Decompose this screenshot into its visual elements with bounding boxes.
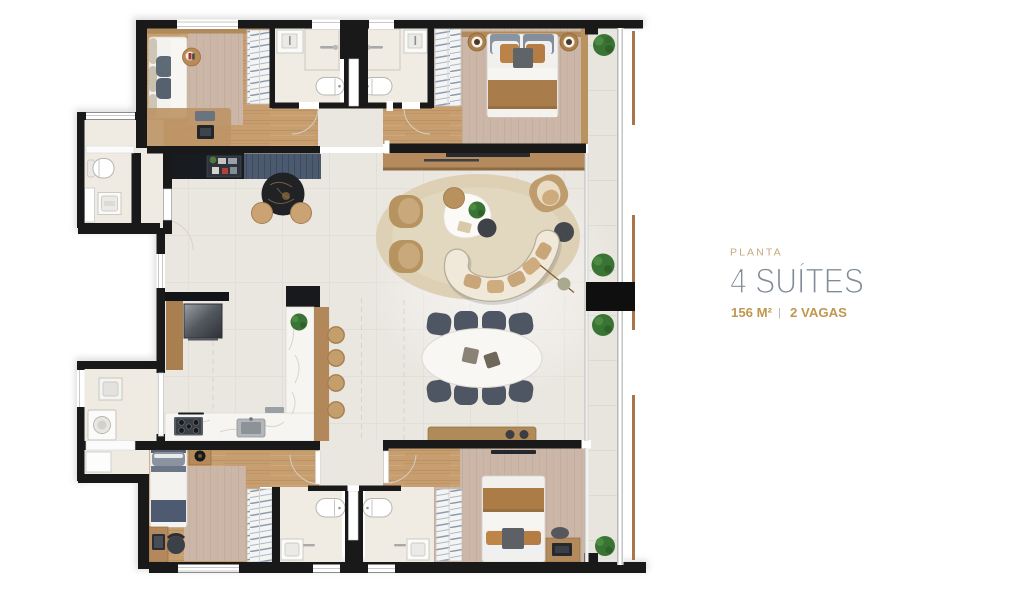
svg-text:2 VAGAS: 2 VAGAS xyxy=(790,305,847,320)
svg-text:|: | xyxy=(778,307,781,319)
svg-text:4 SUÍTES: 4 SUÍTES xyxy=(730,262,864,301)
svg-text:PLANTA: PLANTA xyxy=(730,247,783,259)
svg-text:156 M²: 156 M² xyxy=(731,305,773,320)
